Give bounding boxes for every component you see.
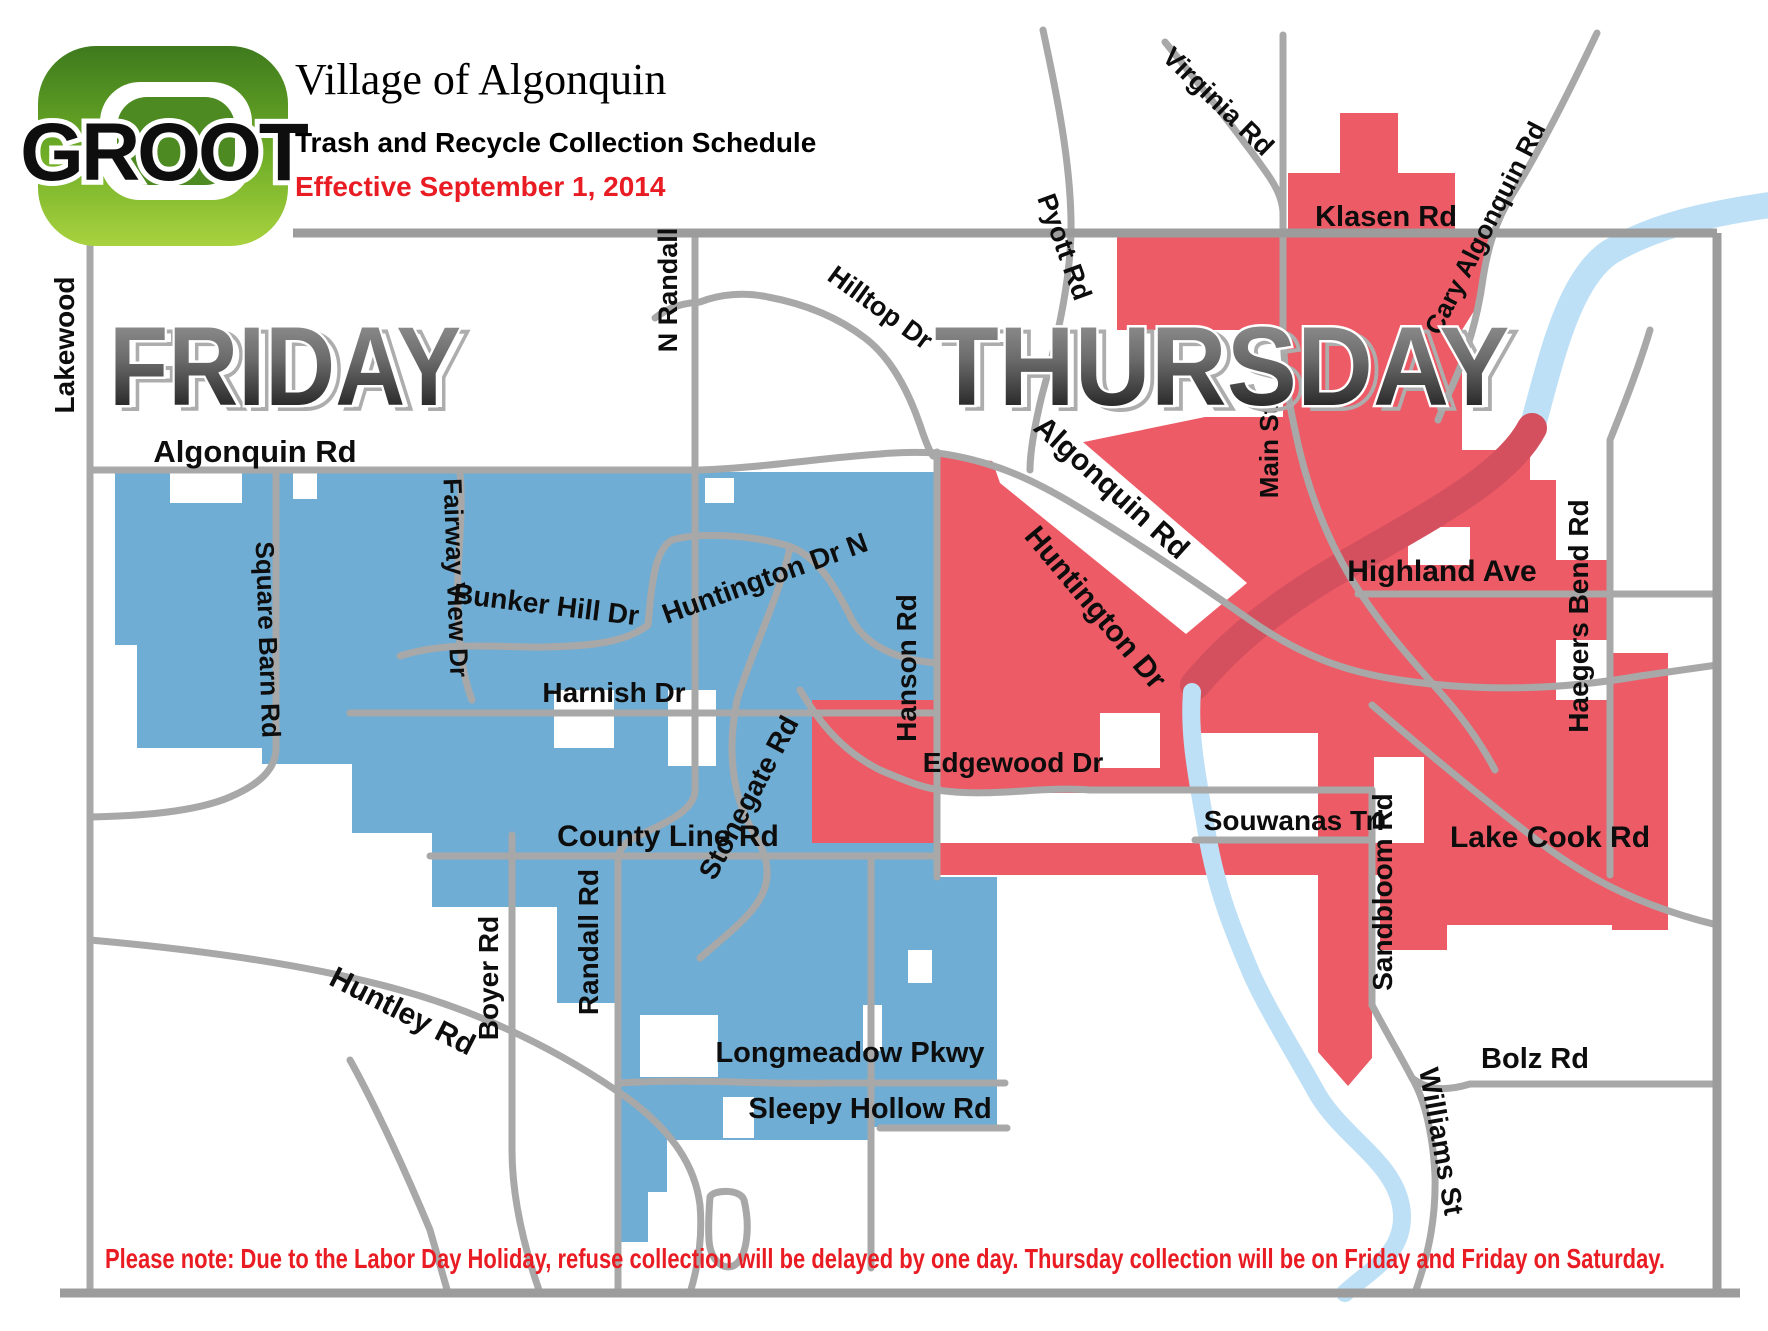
groot-wordmark: GROOT — [20, 107, 309, 198]
road-label-edgewood: Edgewood Dr — [923, 747, 1104, 778]
road-label-haegers-bend: Haegers Bend Rd — [1563, 499, 1594, 732]
groot-logo: GROOT — [20, 46, 309, 246]
river-upper — [1532, 205, 1768, 428]
page-title: Village of Algonquin — [295, 55, 666, 104]
road-bolz — [1412, 1078, 1717, 1089]
road-label-n-randall: N Randall — [653, 228, 683, 353]
road-label-virginia: Virginia Rd — [1157, 41, 1280, 161]
thursday-sandbloom-column — [1318, 840, 1372, 1086]
road-label-sleepy-hollow: Sleepy Hollow Rd — [748, 1093, 991, 1125]
road-label-county-line: County Line Rd — [557, 820, 779, 853]
friday-heading: FRIDAY — [109, 304, 461, 429]
road-label-longmeadow: Longmeadow Pkwy — [715, 1037, 984, 1069]
map-canvas: Lakewood Algonquin Rd N Randall Hilltop … — [0, 0, 1768, 1331]
road-label-hilltop: Hilltop Dr — [822, 260, 938, 356]
road-label-klasen: Klasen Rd — [1315, 201, 1457, 233]
road-label-hanson: Hanson Rd — [891, 594, 922, 742]
road-label-bolz: Bolz Rd — [1481, 1043, 1589, 1075]
road-edgewood — [937, 789, 1372, 793]
header: GROOT Village of Algonquin Trash and Rec… — [20, 46, 816, 246]
road-label-lakewood: Lakewood — [49, 277, 80, 414]
road-label-boyer: Boyer Rd — [473, 916, 504, 1040]
road-label-harnish: Harnish Dr — [542, 677, 685, 708]
effective-date: Effective September 1, 2014 — [295, 171, 666, 202]
road-label-souwanas: Souwanas Trl — [1204, 805, 1385, 836]
holiday-note: Please note: Due to the Labor Day Holida… — [105, 1243, 1665, 1274]
zone-headings: FRIDAY FRIDAY THURSDAY THURSDAY — [109, 304, 1518, 433]
thursday-heading: THURSDAY — [935, 304, 1510, 429]
collection-schedule-map: Lakewood Algonquin Rd N Randall Hilltop … — [0, 0, 1768, 1331]
road-label-algonquin-west: Algonquin Rd — [153, 434, 356, 469]
page-subtitle: Trash and Recycle Collection Schedule — [295, 127, 816, 158]
road-label-pyott: Pyott Rd — [1031, 190, 1097, 305]
road-label-sandbloom: Sandbloom Rd — [1367, 793, 1398, 991]
road-label-randall: Randall Rd — [573, 869, 604, 1015]
road-longmeadow — [620, 1081, 1005, 1083]
road-label-lake-cook: Lake Cook Rd — [1450, 821, 1650, 854]
road-label-highland: Highland Ave — [1347, 555, 1536, 588]
